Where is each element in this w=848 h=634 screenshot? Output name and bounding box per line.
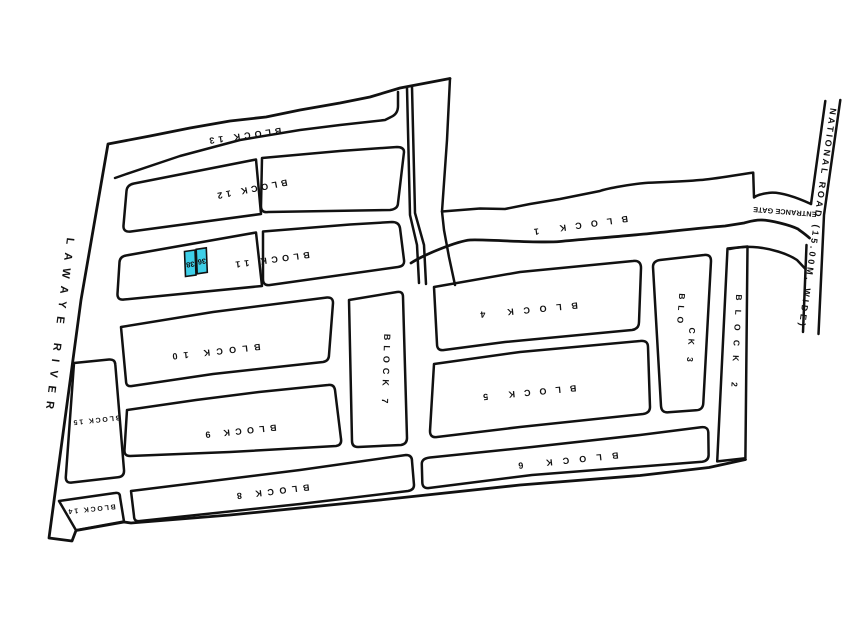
svg-text:36: 36 (197, 256, 207, 266)
svg-text:38: 38 (186, 259, 196, 269)
